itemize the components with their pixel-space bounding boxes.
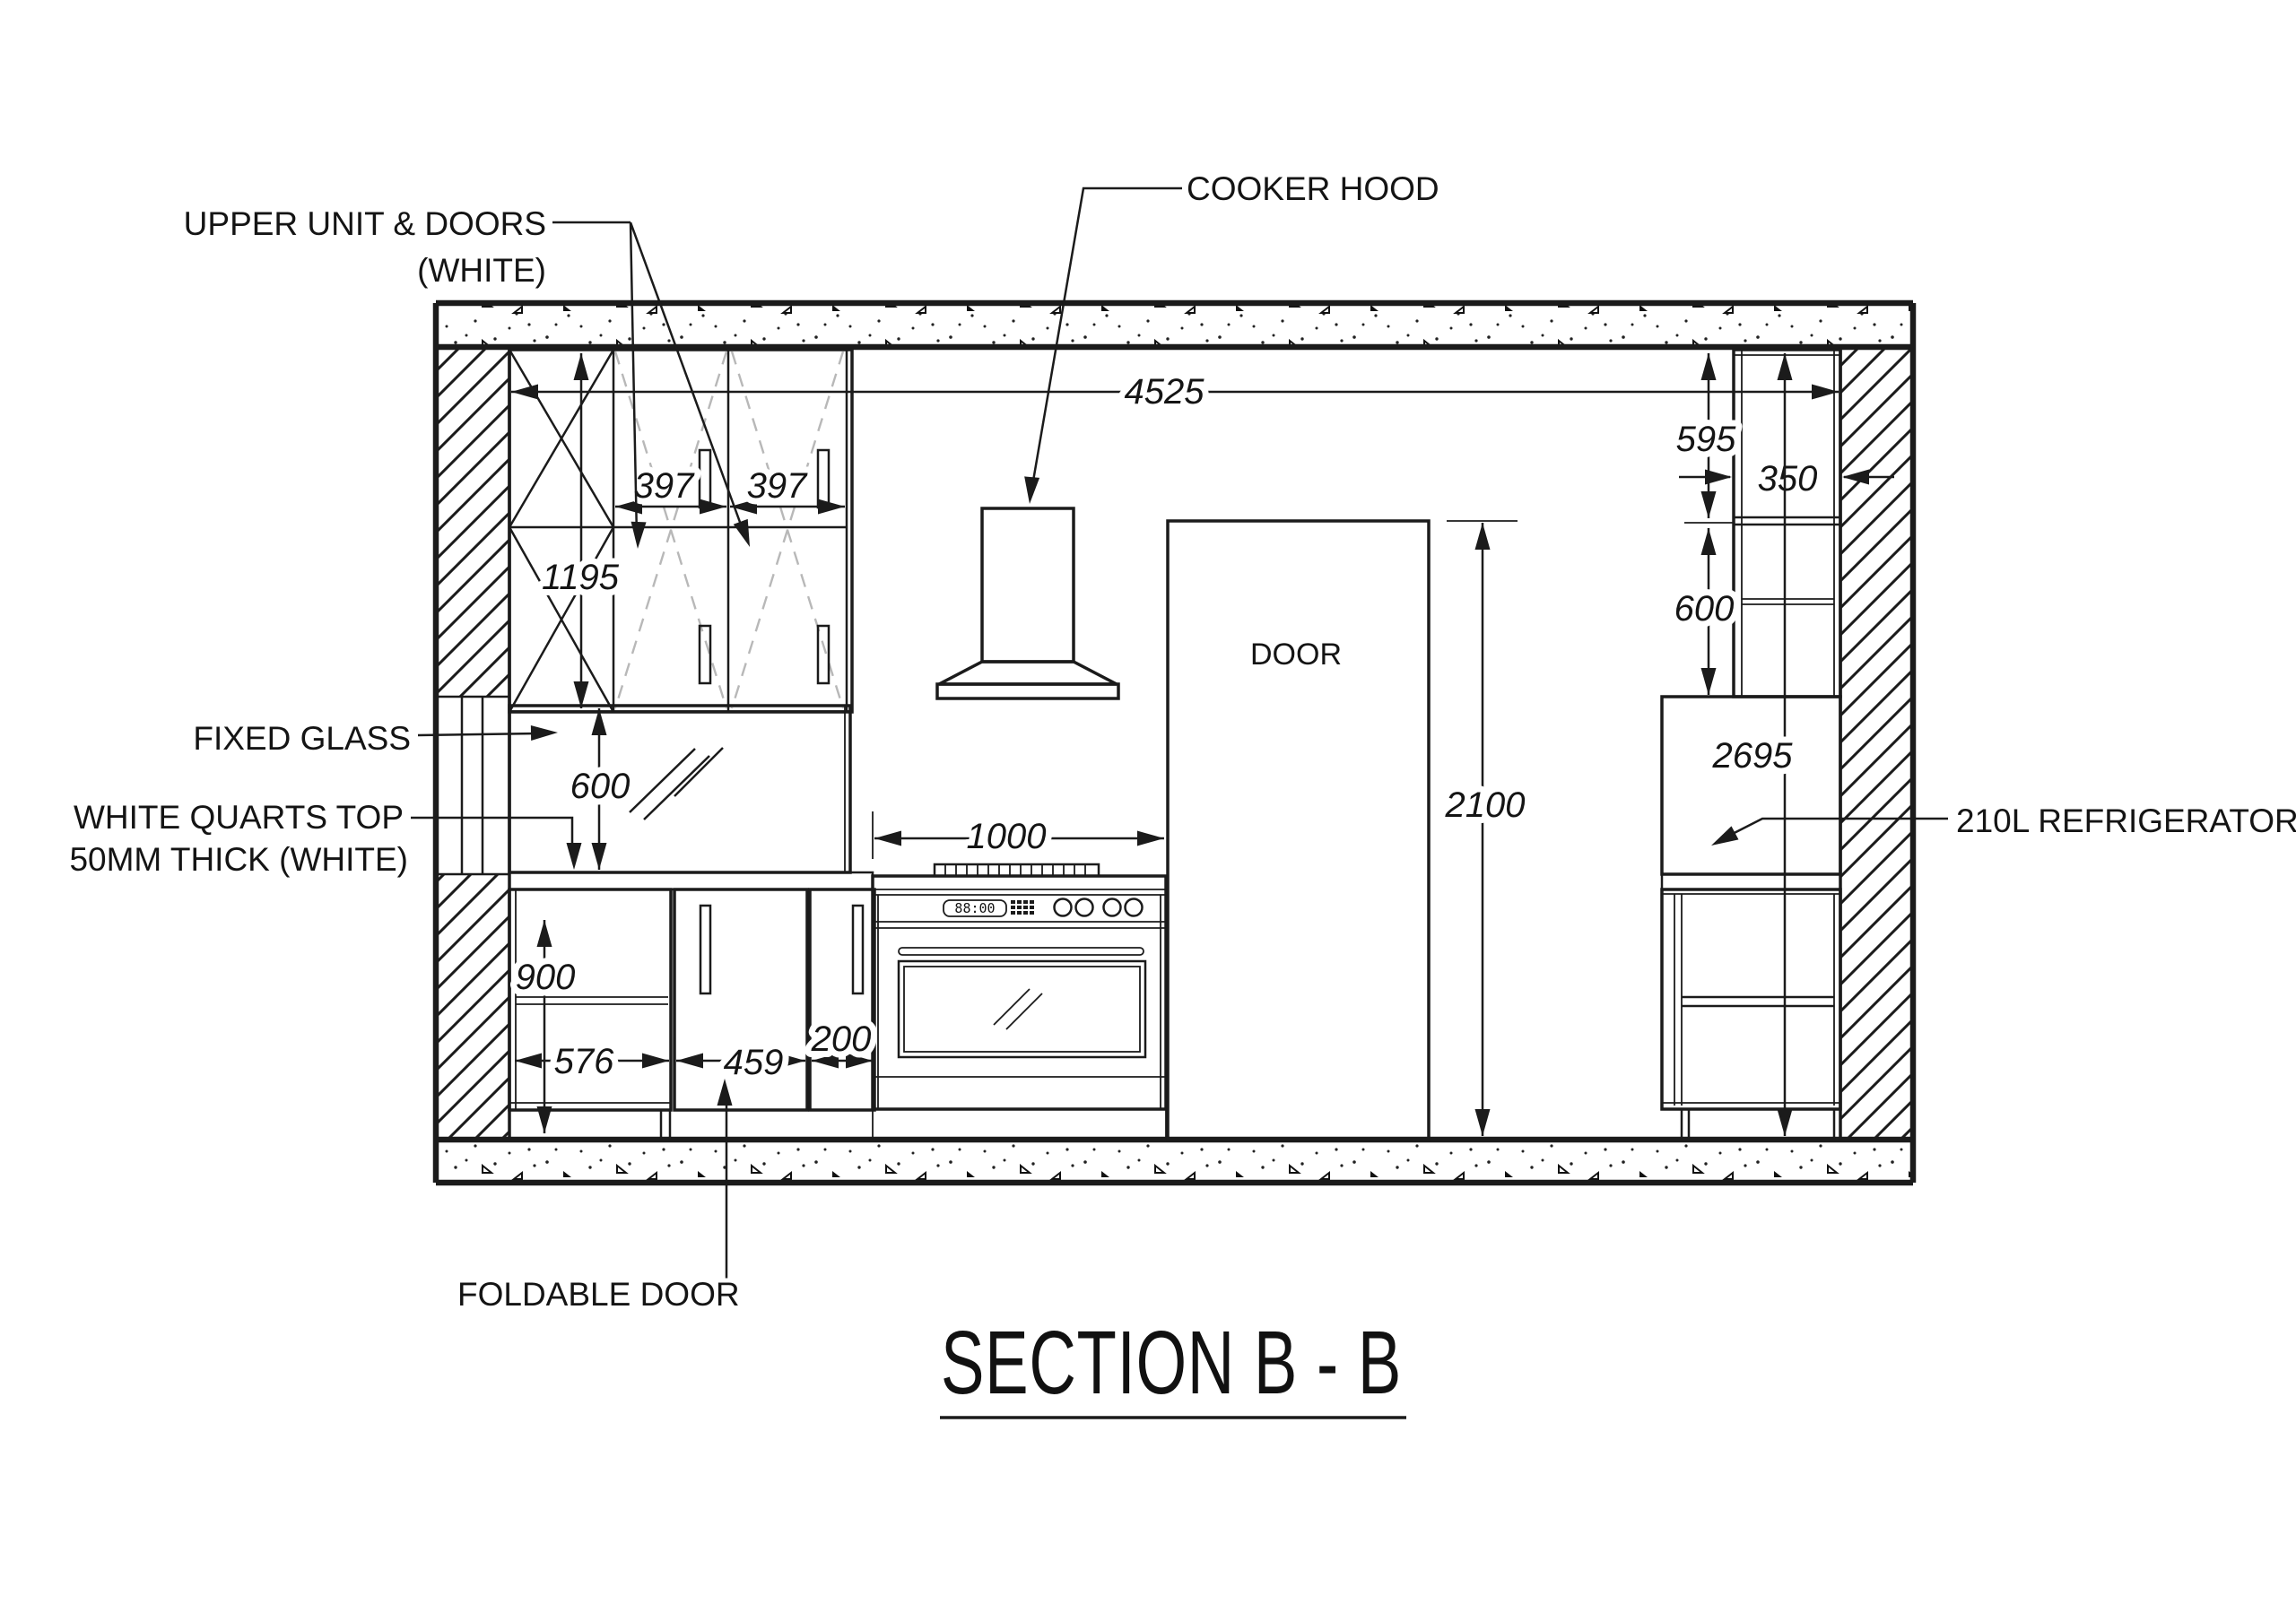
label-fixed-glass: FIXED GLASS [193,720,411,757]
oven-window [899,961,1145,1057]
label-quartz-line2: 50MM THICK (WHITE) [69,841,408,878]
countertop-quartz [509,872,1840,889]
oven-display-time: 88:00 [954,900,995,916]
drawing-title: SECTION B - B [941,1313,1402,1413]
room-door: DOOR [1168,521,1429,1140]
right-wall [1840,347,1910,1140]
dim-upper-unit-height: 1195 [542,558,620,597]
dim-overall-width: 4525 [1125,372,1205,412]
left-wall-upper [439,347,509,697]
oven-knobs [1055,899,1143,916]
dim-upper-door-right: 397 [747,466,808,506]
dim-backsplash-height: 600 [570,767,631,806]
section-bb-canvas: 88:00 DOOR [0,0,2296,1622]
dim-right-upper-depth: 350 [1758,459,1818,499]
base-cabinets-left [509,889,874,1140]
title-block: SECTION B - B [940,1313,1406,1418]
dim-cooktop-width: 1000 [967,817,1047,856]
left-wall-lower [439,874,509,1140]
left-wall-mid-strip [439,697,509,874]
kitchen-section-drawing: 88:00 DOOR [0,0,2296,1622]
dim-upper-door-left: 397 [634,466,695,506]
dim-right-upper-bottom: 600 [1674,589,1735,629]
fixed-glass-panel [509,706,850,872]
label-upper-unit-line2: (WHITE) [417,252,546,289]
door-label: DOOR [1250,638,1342,672]
oven-handle [899,948,1144,955]
label-refrigerator: 210L REFRIGERATOR [1956,802,2296,839]
dim-door-height: 2100 [1445,785,1526,825]
dim-base-interior-height: 900 [516,958,576,997]
dimension-lines: 4525 397 397 1195 595 600 350 2695 2100 [511,353,1894,1136]
right-base-cabinet [1662,889,1840,1109]
dim-right-unit-height: 2695 [1712,736,1794,776]
right-upper-cabinet [1734,350,1840,697]
cooker-hood [937,508,1118,698]
label-foldable-door: FOLDABLE DOOR [457,1276,740,1313]
glass-symbol [630,748,723,820]
oven-buttons [1011,900,1034,915]
label-quartz-line1: WHITE QUARTS TOP [74,799,404,836]
refrigerator-compartment [1662,697,1840,874]
label-upper-unit-line1: UPPER UNIT & DOORS [184,205,546,242]
upper-unit-left [509,350,852,712]
dim-foldable-width: 459 [724,1043,784,1082]
x-braced-column [509,350,613,712]
bottom-slab [436,1140,1913,1183]
dim-narrow-width: 200 [811,1019,872,1059]
narrow-unit [810,889,874,1110]
top-slab [436,303,1913,347]
dim-right-upper-top: 595 [1676,420,1736,459]
label-cooker-hood: COOKER HOOD [1187,170,1439,207]
range-oven: 88:00 [873,864,1166,1140]
dim-base-open-width: 576 [554,1042,614,1081]
